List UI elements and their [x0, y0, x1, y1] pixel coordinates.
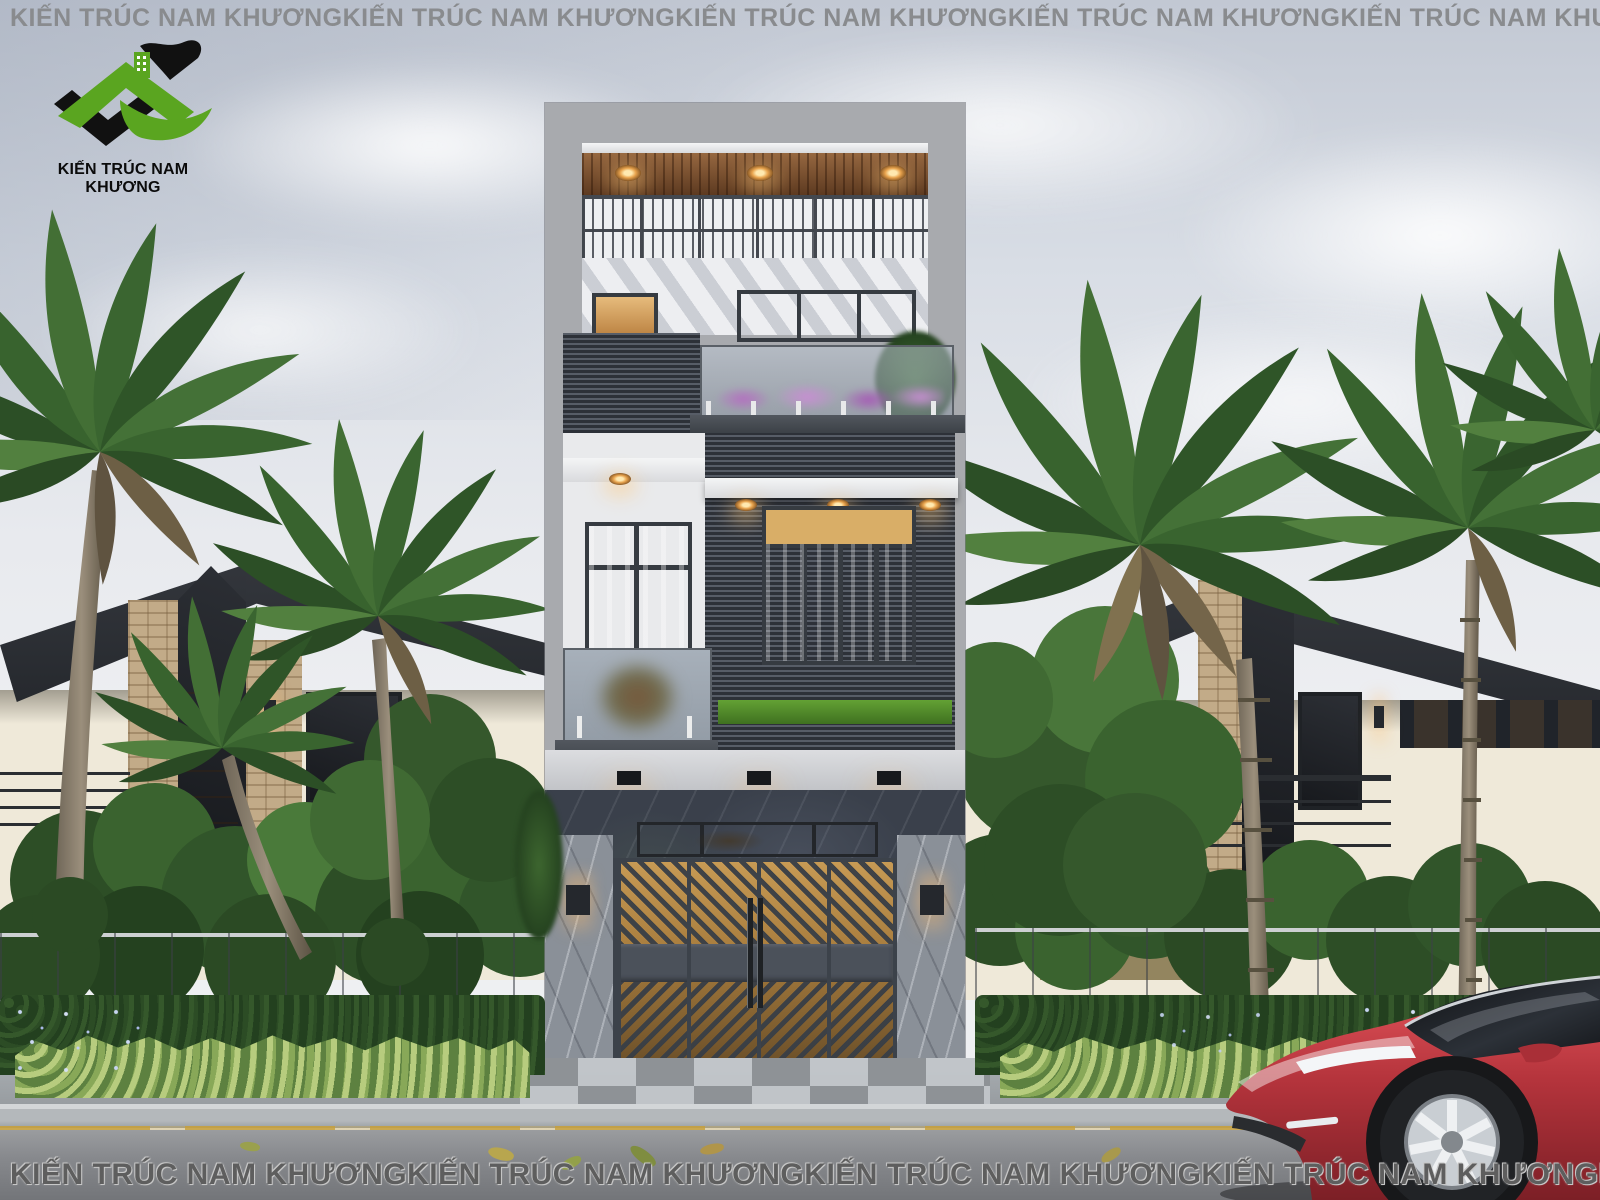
watermark-row-bottom: KIẾN TRÚC NAM KHƯƠNG KIẾN TRÚC NAM KHƯƠN… — [0, 1158, 1600, 1192]
watermark-text: KIẾN TRÚC NAM KHƯƠNG — [675, 4, 1008, 33]
watermark-row-top: KIẾN TRÚC NAM KHƯƠNG KIẾN TRÚC NAM KHƯƠN… — [0, 4, 1600, 33]
watermark-text: KIẾN TRÚC NAM KHƯƠNG — [343, 4, 676, 33]
company-logo: KIẾN TRÚC NAM KHƯƠNG — [28, 36, 218, 197]
logo-mark — [28, 36, 218, 154]
watermark-text: KIẾN TRÚC NAM KHƯƠNG — [10, 1158, 407, 1192]
car-hub — [1441, 1131, 1463, 1153]
watermark-text: KIẾN TRÚC NAM KHƯƠNG — [1340, 4, 1600, 33]
architectural-render: KIẾN TRÚC NAM KHƯƠNG KIẾN TRÚC NAM KHƯƠN… — [0, 0, 1600, 1200]
logo-caption: KIẾN TRÚC NAM KHƯƠNG — [28, 161, 218, 197]
watermark-text: KIẾN TRÚC NAM KHƯƠNG — [804, 1158, 1201, 1192]
watermark-text: KIẾN TRÚC NAM KHƯƠNG — [1201, 1158, 1598, 1192]
watermark-text: KIẾN TRÚC NAM KHƯƠNG — [1008, 4, 1341, 33]
watermark-text: KIẾN TRÚC NAM KHƯƠNG — [10, 4, 343, 33]
logo-chimney — [134, 52, 150, 78]
red-car — [0, 0, 1600, 1200]
watermark-text: KIẾN TRÚC NAM KHƯƠNG — [407, 1158, 804, 1192]
